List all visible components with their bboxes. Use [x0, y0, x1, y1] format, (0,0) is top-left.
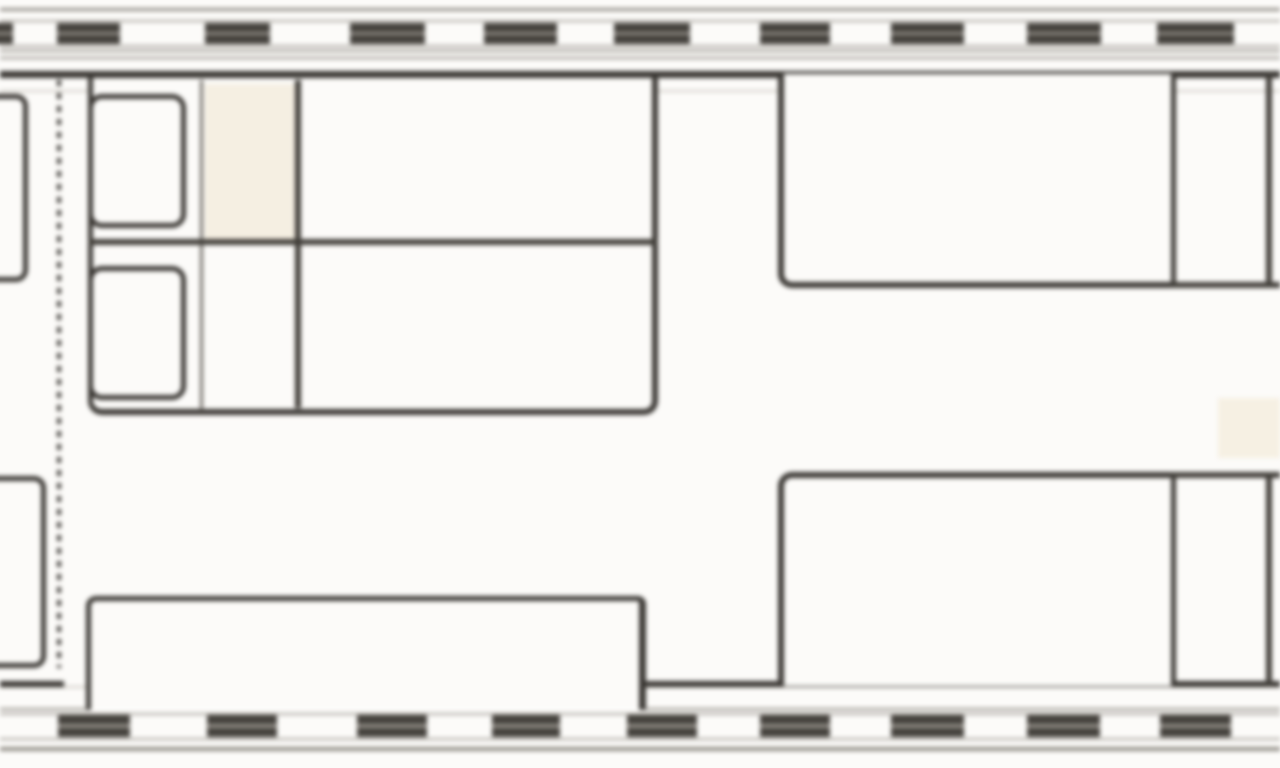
top-window-band-lower-line: [0, 45, 1280, 47]
bed-center-divider: [88, 239, 658, 245]
bed-mattress-seam-left: [200, 80, 203, 410]
bottom-wall-window: [1027, 715, 1100, 737]
top-sill-line-inner: [0, 57, 1280, 59]
bottom-wall-window: [627, 715, 697, 737]
right-end-upper-vertical: [1266, 74, 1272, 288]
top-wall-window: [57, 23, 120, 44]
bottom-bench: [86, 596, 646, 710]
right-end-lower-vertical: [1266, 472, 1272, 686]
bottom-wall-window: [891, 715, 964, 737]
bed-head-shading: [205, 84, 297, 240]
right-lower-bed: [778, 472, 1176, 686]
top-wall-window: [891, 23, 964, 44]
bottom-wall-window: [1160, 715, 1231, 737]
bottom-wall-window: [760, 715, 830, 737]
bottom-outer-edge-line: [0, 747, 1280, 751]
bottom-wall-window: [58, 715, 130, 737]
bottom-wall-window: [492, 715, 560, 737]
right-end-upper-shelf-line: [1171, 282, 1280, 288]
bottom-window-band-lower-line: [0, 738, 1280, 740]
pillow-lower: [88, 266, 186, 400]
top-sill-line-outer: [0, 50, 1280, 52]
top-wall-window: [0, 23, 13, 44]
bottom-wall-window: [207, 715, 277, 737]
bottom-wall-window: [357, 715, 427, 737]
left-lower-berth: [0, 476, 46, 668]
top-wall-window: [614, 23, 690, 44]
right-end-lower-shelf-line: [1171, 472, 1280, 478]
top-wall-window: [1157, 23, 1234, 44]
pillow-upper: [88, 94, 186, 228]
floorplan: [0, 0, 1280, 768]
floorplan-canvas: [0, 0, 1280, 768]
partition-dashed-line: [57, 80, 61, 668]
bottom-inner-wall-line-left: [0, 681, 64, 687]
top-wall-window: [205, 23, 270, 44]
top-wall-window: [760, 23, 830, 44]
top-wall-window: [1027, 23, 1101, 44]
top-outer-edge-line: [0, 8, 1280, 11]
top-window-band-upper-line: [0, 20, 1280, 22]
top-wall-window: [484, 23, 557, 44]
left-upper-berth: [0, 94, 28, 282]
top-wall-window: [350, 23, 425, 44]
right-upper-bed: [778, 74, 1176, 288]
aisle-floor-shading: [1218, 398, 1280, 458]
